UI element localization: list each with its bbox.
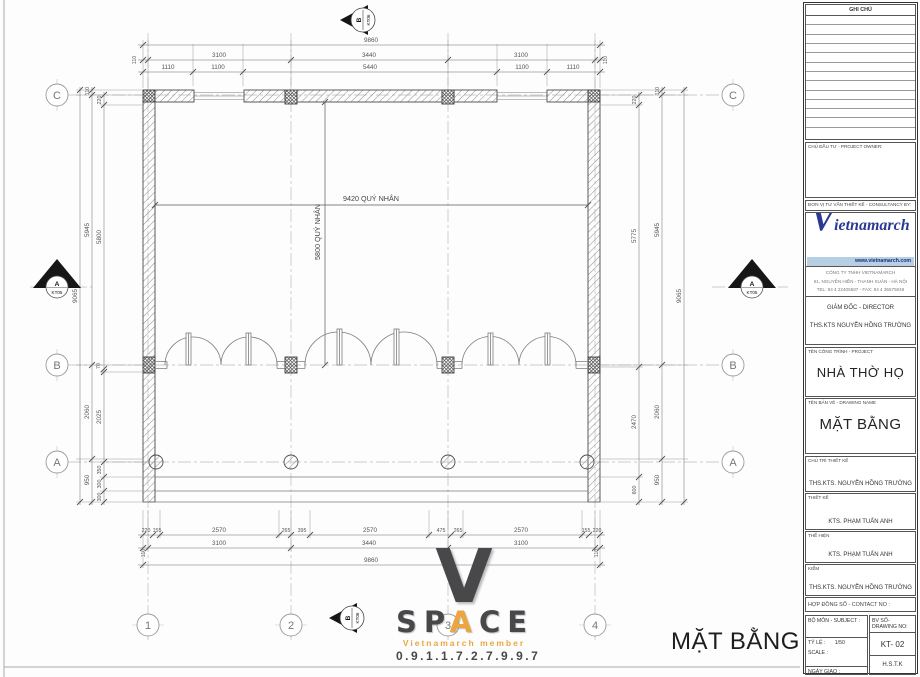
drawing-name-label: TÊN BẢN VẼ - DRAWING NAME xyxy=(806,399,915,406)
wall-top-segment xyxy=(297,90,442,102)
dim-label: 9065 xyxy=(72,289,79,304)
dim-label: 600 xyxy=(632,486,638,495)
scale-value: 1/50 xyxy=(835,640,845,646)
draft-section: THỂ HIỆN KTS. PHẠM TUẤN ANH xyxy=(805,531,916,563)
dim-label: 220 xyxy=(593,528,602,534)
brand-rest: ietnamarch xyxy=(834,217,910,234)
column xyxy=(588,357,600,373)
section-marker-bottom: B KT06 xyxy=(329,603,364,633)
dim-label: 2060 xyxy=(654,405,661,420)
dim-label: 110 xyxy=(594,549,600,557)
lead-label: CHỦ TRÌ THIẾT KẾ xyxy=(806,457,915,464)
right-dimensions: 220 5775 2470 600 110 5945 2060 950 9065 xyxy=(600,87,688,505)
grid-label-row-c: C xyxy=(53,90,61,102)
project-name: NHÀ THỜ HỌ xyxy=(806,365,915,380)
column xyxy=(285,90,297,104)
designer-section: THIẾT KẾ KTS. PHẠM TUẤN ANH xyxy=(805,493,916,530)
dim-label: 220 xyxy=(142,528,151,534)
logo-letter: A xyxy=(449,605,478,639)
interior-dimensions: 9420 QUÝ NHÂN 5800 QUÝ NHÂN xyxy=(152,99,591,368)
section-marker-top: B KT06 xyxy=(340,5,375,35)
project-label: TÊN CÔNG TRÌNH - PROJECT xyxy=(806,348,915,355)
consultant-header: ĐƠN VỊ TƯ VẤN THIẾT KẾ - CONSULTANCY BY: xyxy=(805,200,916,211)
dim-label: 300 xyxy=(97,480,103,489)
dim-label: 1110 xyxy=(566,64,580,71)
column xyxy=(442,357,454,373)
scale-label: TỶ LỆ : xyxy=(808,640,825,646)
dim-label: 2570 xyxy=(363,527,378,534)
grid-label-col-2: 2 xyxy=(288,620,294,632)
dim-label: 5945 xyxy=(84,223,91,238)
company-name: CÔNG TY TNHH VIETNAMARCH xyxy=(806,269,915,278)
dim-label: 5800 QUÝ NHÂN xyxy=(313,204,322,260)
director-name: THS.KTS NGUYỄN HỒNG TRƯỜNG xyxy=(806,323,915,329)
scale-cell: TỶ LỆ : 1/50 SCALE : xyxy=(806,638,867,667)
door-swing-arcs xyxy=(165,332,576,365)
check-label: KIỂM xyxy=(806,565,915,572)
dim-label: 3100 xyxy=(212,52,227,59)
titleblock-bottom-grid: BỘ MÔN - SUBJECT : TỶ LỆ : 1/50 SCALE : … xyxy=(805,615,916,675)
director-section: GIÁM ĐỐC - DIRECTOR THS.KTS NGUYỄN HỒNG … xyxy=(805,297,916,345)
title-block: GHI CHÚ CHỦ ĐẦU TƯ - PROJECT OWNER: ĐƠN … xyxy=(803,2,918,674)
check-section: KIỂM THS.KTS. NGUYỄN HỒNG TRƯỜNG xyxy=(805,564,916,596)
walls xyxy=(143,90,600,502)
drawing-no-label: BV SỐ-DRAWING NO: xyxy=(870,616,915,633)
section-ref: KT05 xyxy=(52,290,63,295)
dim-label: 265 xyxy=(282,528,291,534)
dim-label: 3440 xyxy=(362,52,377,59)
project-section: TÊN CÔNG TRÌNH - PROJECT NHÀ THỜ HỌ xyxy=(805,347,916,397)
section-ref: KT06 xyxy=(366,14,371,25)
wall-left xyxy=(143,90,155,502)
issue-label: NGÀY GIAO : xyxy=(808,669,865,675)
vietnamarch-brand: Vietnamarch xyxy=(806,217,915,235)
dim-label: 9420 QUÝ NHÂN xyxy=(343,194,399,203)
grid-label-row-c: C xyxy=(729,90,737,102)
issue-date-cell: NGÀY GIAO : ISSUE DATE : xyxy=(806,667,867,677)
lead-designer-section: CHỦ TRÌ THIẾT KẾ THS.KTS. NGUYỄN HỒNG TR… xyxy=(805,456,916,492)
dim-label: 1100 xyxy=(211,64,225,71)
brand-initial: V xyxy=(811,213,834,238)
owner-section: CHỦ ĐẦU TƯ - PROJECT OWNER: xyxy=(805,142,916,198)
section-label: B xyxy=(356,17,363,22)
space-logo-word: SPACE xyxy=(396,608,532,637)
dim-label: 350 xyxy=(97,466,103,475)
dim-label: 220 xyxy=(97,96,103,105)
company-info: CÔNG TY TNHH VIETNAMARCH 61, NGUYỄN HIỀN… xyxy=(805,267,916,297)
logo-letter: P xyxy=(424,605,450,639)
plan-caption: MẶT BẰNG xyxy=(671,627,800,655)
top-dimensions: 9860 110 3100 3440 3100 110 1110 1100 54… xyxy=(132,37,609,88)
dim-label: 2025 xyxy=(96,410,103,425)
grid-label-row-a: A xyxy=(53,457,61,469)
columns xyxy=(143,90,600,373)
dim-label: 300 xyxy=(97,493,103,502)
space-logo-member-text: Vietnamarch member xyxy=(396,639,532,648)
logo-letter: E xyxy=(507,605,534,639)
dim-label: 110 xyxy=(655,87,661,95)
section-label: A xyxy=(750,281,755,288)
dim-label: 950 xyxy=(84,474,91,485)
door-leaves xyxy=(186,329,550,365)
director-label: GIÁM ĐỐC - DIRECTOR xyxy=(806,305,915,311)
drawing-name-section: TÊN BẢN VẼ - DRAWING NAME MẶT BẰNG xyxy=(805,398,916,454)
drawing-no-value: KT- 02 xyxy=(870,633,915,656)
wall-top-segment xyxy=(547,90,588,102)
contract-section: HỢP ĐỒNG SỐ - CONTACT NO : xyxy=(805,597,916,612)
consultant-label: ĐƠN VỊ TƯ VẤN THIẾT KẾ - CONSULTANCY BY: xyxy=(806,201,915,208)
draft-name: KTS. PHẠM TUẤN ANH xyxy=(806,552,915,558)
wall-right xyxy=(588,90,600,502)
dim-label: 155 xyxy=(582,528,591,534)
notes-section: GHI CHÚ xyxy=(805,4,916,140)
dim-label: 155 xyxy=(153,528,162,534)
grid-label-col-4: 4 xyxy=(592,620,598,632)
doors xyxy=(155,329,588,369)
dim-label: 9065 xyxy=(676,289,683,304)
dim-label: 110 xyxy=(132,56,138,64)
vietnamarch-logo: Vietnamarch xyxy=(806,213,915,257)
dim-label: 2060 xyxy=(84,405,91,420)
lead-name: THS.KTS. NGUYỄN HỒNG TRƯỜNG xyxy=(806,481,915,487)
dim-label: 110 xyxy=(141,549,147,557)
dim-label: 5775 xyxy=(631,229,638,244)
dim-label: 9860 xyxy=(364,557,379,564)
issue-value: H.S.T.K xyxy=(870,656,915,674)
dim-label: 5945 xyxy=(654,223,661,238)
dim-label: 3440 xyxy=(362,540,377,547)
grid-label-row-a: A xyxy=(729,457,737,469)
dim-label: 70 xyxy=(96,363,102,369)
wall-top-segment xyxy=(454,90,497,102)
designer-label: THIẾT KẾ xyxy=(806,494,915,501)
dim-label: 220 xyxy=(632,96,638,105)
dim-label: 5800 xyxy=(96,230,103,245)
dim-label: 1110 xyxy=(161,64,175,71)
section-label: B xyxy=(345,615,352,620)
dim-label: 1100 xyxy=(515,64,529,71)
section-marker-right: A KT05 xyxy=(728,259,776,298)
grid-label-row-b: B xyxy=(729,360,736,372)
dim-label: 395 xyxy=(298,528,307,534)
dim-label: 2570 xyxy=(212,527,227,534)
owner-label: CHỦ ĐẦU TƯ - PROJECT OWNER: xyxy=(806,143,915,150)
draft-label: THỂ HIỆN xyxy=(806,532,915,539)
logo-letter: S xyxy=(396,605,424,639)
dim-label: 2470 xyxy=(631,415,638,430)
section-label: A xyxy=(55,281,60,288)
wall-top-segment xyxy=(244,90,285,102)
section-ref: KT06 xyxy=(355,612,360,623)
column xyxy=(442,90,454,104)
vietnamarch-website[interactable]: www.vietnamarch.com xyxy=(807,257,914,266)
designer-name: KTS. PHẠM TUẤN ANH xyxy=(806,519,915,525)
grid-label-row-b: B xyxy=(53,360,60,372)
section-ref: KT05 xyxy=(747,290,758,295)
check-name: THS.KTS. NGUYỄN HỒNG TRƯỜNG xyxy=(806,585,915,591)
dim-label: 2570 xyxy=(514,527,529,534)
notes-header: GHI CHÚ xyxy=(806,5,915,16)
subject-label: BỘ MÔN - SUBJECT : xyxy=(806,616,867,638)
grid-label-col-1: 1 xyxy=(145,620,151,632)
column xyxy=(143,357,155,373)
dim-label: 3100 xyxy=(514,52,529,59)
column xyxy=(588,90,600,102)
notes-empty-rows xyxy=(806,16,915,136)
logo-letter: C xyxy=(479,605,507,639)
space-logo: V SPACE Vietnamarch member 0.9.1.1.7.2.7… xyxy=(396,540,532,662)
dim-label: 9860 xyxy=(364,37,379,44)
company-phone: TEL: 84 4 22405587 - FAX: 84 4 35575046 xyxy=(806,286,915,295)
drawing-name: MẶT BẰNG xyxy=(806,416,915,433)
consultant-logo-box: Vietnamarch www.vietnamarch.com xyxy=(805,212,916,267)
contract-label: HỢP ĐỒNG SỐ - CONTACT NO : xyxy=(806,601,892,609)
column xyxy=(285,357,297,373)
dim-label: 3100 xyxy=(212,540,227,547)
bottom-dimensions: 220 155 2570 265 395 2570 475 265 2570 1… xyxy=(138,510,605,568)
scale-label-en: SCALE : xyxy=(808,650,865,656)
company-address: 61, NGUYỄN HIỀN - THANH XUÂN - HÀ NỘI xyxy=(806,278,915,287)
wall-top-segment xyxy=(155,90,194,102)
space-logo-v-icon: V xyxy=(396,540,532,614)
dim-label: 950 xyxy=(654,474,661,485)
column xyxy=(143,90,155,102)
drawing-sheet: 9420 QUÝ NHÂN 5800 QUÝ NHÂN 9860 110 310… xyxy=(0,0,920,677)
space-logo-phone: 0.9.1.1.7.2.7.9.9.7 xyxy=(396,650,532,662)
dim-label: 5440 xyxy=(363,64,378,71)
dim-label: 110 xyxy=(603,56,609,64)
dim-label: 110 xyxy=(85,87,91,95)
steps xyxy=(143,477,600,502)
